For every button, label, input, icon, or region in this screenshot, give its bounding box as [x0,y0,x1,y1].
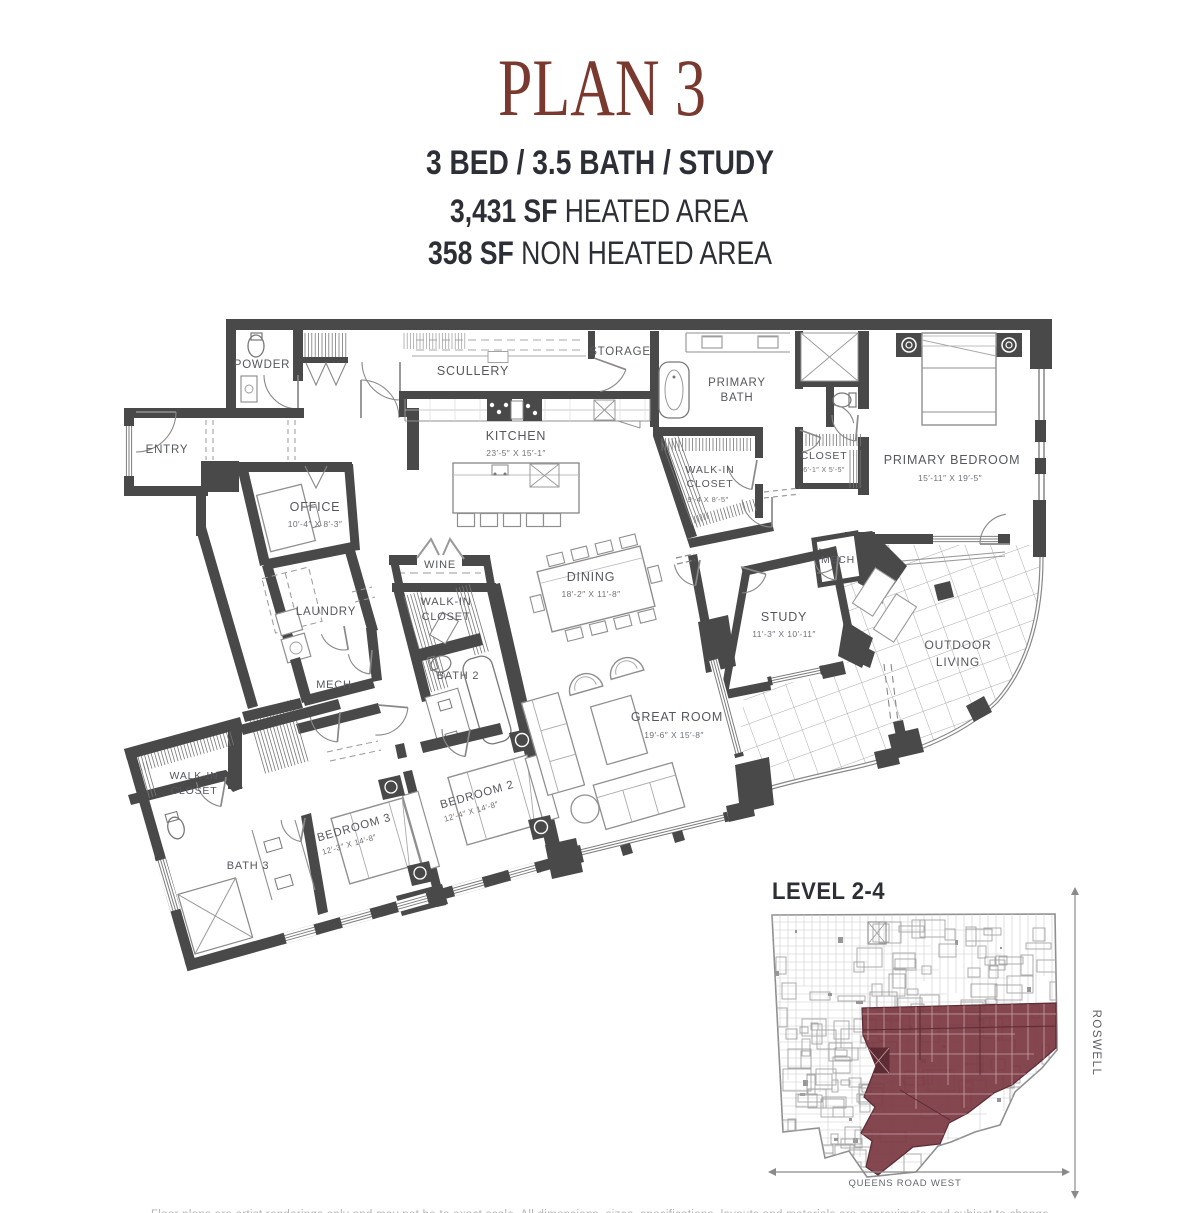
svg-text:19′-6″ X 15′-8″: 19′-6″ X 15′-8″ [644,730,704,740]
svg-text:OUTDOOR: OUTDOOR [925,638,992,652]
svg-text:3 BED / 3.5 BATH / STUDY: 3 BED / 3.5 BATH / STUDY [426,144,774,182]
svg-text:WALK-IN: WALK-IN [420,596,471,608]
svg-text:PLAN 3: PLAN 3 [498,42,706,133]
svg-text:LIVING: LIVING [936,655,980,669]
svg-text:QUEENS ROAD WEST: QUEENS ROAD WEST [848,1178,961,1189]
svg-text:BATH: BATH [720,392,753,404]
svg-text:KITCHEN: KITCHEN [486,429,546,443]
svg-text:CLOSET: CLOSET [171,785,218,797]
svg-text:23′-5″ X 15′-1″: 23′-5″ X 15′-1″ [486,448,546,458]
svg-text:CLOSET: CLOSET [687,478,734,490]
svg-text:ROSWELL: ROSWELL [1090,1010,1102,1077]
svg-text:358 SF NON HEATED AREA: 358 SF NON HEATED AREA [428,235,773,271]
svg-text:ENTRY: ENTRY [146,444,189,456]
svg-text:11′-3″ X 10′-11″: 11′-3″ X 10′-11″ [752,629,816,639]
svg-text:POWDER: POWDER [234,359,291,371]
svg-text:CLOSET: CLOSET [422,611,471,623]
svg-text:3,431 SF HEATED AREA: 3,431 SF HEATED AREA [450,193,749,229]
svg-text:Floor plans are artist renderi: Floor plans are artist renderings only a… [151,1209,1049,1213]
svg-text:WALK-IN: WALK-IN [170,770,219,782]
svg-text:OFFICE: OFFICE [290,500,341,514]
svg-text:STORAGE: STORAGE [589,346,651,358]
svg-text:PRIMARY: PRIMARY [708,377,766,389]
svg-text:15′-11″ X 19′-5″: 15′-11″ X 19′-5″ [918,473,982,483]
svg-text:BATH 3: BATH 3 [227,860,270,872]
svg-text:10′-4″ X 8′-3″: 10′-4″ X 8′-3″ [288,519,343,529]
svg-text:SCULLERY: SCULLERY [437,364,509,378]
svg-text:BATH 2: BATH 2 [437,670,480,682]
svg-text:CLOSET: CLOSET [801,450,848,462]
svg-text:6′-1″ X 5′-5″: 6′-1″ X 5′-5″ [803,467,845,474]
svg-text:9′-4 X 8′-5″: 9′-4 X 8′-5″ [687,495,728,504]
svg-text:DINING: DINING [567,570,616,584]
svg-text:PRIMARY BEDROOM: PRIMARY BEDROOM [884,453,1021,467]
svg-text:STUDY: STUDY [761,610,807,624]
svg-text:WALK-IN: WALK-IN [686,464,735,476]
svg-text:MECH: MECH [821,554,855,566]
svg-text:LAUNDRY: LAUNDRY [296,606,356,618]
svg-text:18′-2″ X 11′-8″: 18′-2″ X 11′-8″ [562,589,621,599]
svg-text:WINE: WINE [424,559,456,571]
svg-text:LEVEL 2-4: LEVEL 2-4 [772,878,885,905]
svg-text:GREAT ROOM: GREAT ROOM [631,710,723,724]
svg-text:MECH: MECH [316,679,352,691]
